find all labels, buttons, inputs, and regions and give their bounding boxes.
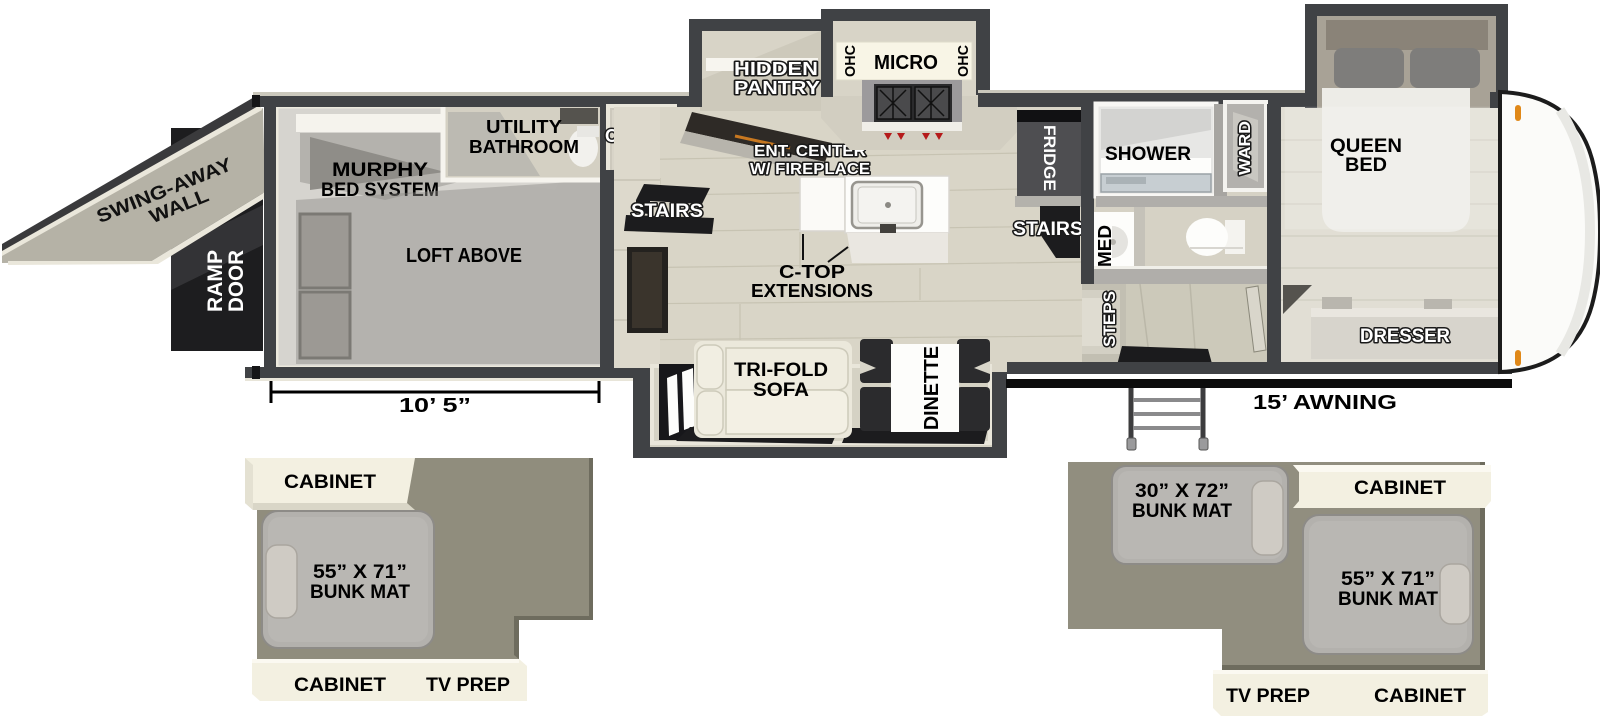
svg-text:55” X 71”: 55” X 71”: [1341, 569, 1435, 590]
svg-text:10’ 5”: 10’ 5”: [399, 395, 471, 417]
svg-text:TV PREP: TV PREP: [1226, 686, 1310, 707]
svg-text:BED: BED: [1345, 155, 1387, 176]
svg-text:RAMP: RAMP: [204, 250, 227, 312]
svg-text:EXTENSIONS: EXTENSIONS: [751, 281, 873, 301]
svg-text:CABINET: CABINET: [284, 472, 376, 493]
svg-text:SHOWER: SHOWER: [1105, 144, 1191, 165]
svg-text:BATHROOM: BATHROOM: [469, 137, 579, 157]
svg-text:TV PREP: TV PREP: [426, 675, 510, 696]
svg-text:CABINET: CABINET: [294, 675, 386, 696]
svg-text:CABINET: CABINET: [1354, 478, 1446, 499]
svg-text:BUNK MAT: BUNK MAT: [310, 582, 410, 603]
svg-text:OHC: OHC: [842, 45, 859, 77]
svg-text:TRI-FOLD: TRI-FOLD: [734, 360, 828, 381]
svg-text:DRESSER: DRESSER: [1360, 326, 1450, 347]
svg-text:QUEEN: QUEEN: [1330, 136, 1402, 157]
svg-text:SOFA: SOFA: [753, 380, 809, 401]
svg-text:DOOR: DOOR: [225, 250, 248, 312]
svg-text:MED: MED: [1095, 225, 1115, 267]
svg-text:HIDDEN: HIDDEN: [734, 59, 818, 79]
svg-text:MICRO: MICRO: [874, 52, 938, 74]
svg-text:DINETTE: DINETTE: [921, 346, 943, 430]
svg-text:BUNK MAT: BUNK MAT: [1338, 589, 1438, 610]
svg-text:FRIDGE: FRIDGE: [1040, 125, 1059, 191]
svg-text:WARD: WARD: [1237, 121, 1254, 175]
svg-text:OHC: OHC: [955, 45, 972, 77]
svg-text:BUNK MAT: BUNK MAT: [1132, 501, 1232, 522]
svg-text:30” X 72”: 30” X 72”: [1135, 481, 1229, 502]
svg-text:PANTRY: PANTRY: [734, 78, 820, 98]
svg-text:STAIRS: STAIRS: [1013, 219, 1083, 240]
svg-text:STAIRS: STAIRS: [631, 201, 703, 222]
svg-text:CABINET: CABINET: [1374, 686, 1466, 707]
svg-text:C-TOP: C-TOP: [779, 262, 845, 282]
svg-text:MURPHY: MURPHY: [332, 160, 428, 181]
svg-text:55” X 71”: 55” X 71”: [313, 562, 407, 583]
svg-text:15’ AWNING: 15’ AWNING: [1253, 392, 1397, 414]
svg-text:UTILITY: UTILITY: [486, 117, 562, 137]
svg-text:STEPS: STEPS: [1100, 291, 1119, 347]
svg-text:LOFT ABOVE: LOFT ABOVE: [406, 245, 522, 267]
